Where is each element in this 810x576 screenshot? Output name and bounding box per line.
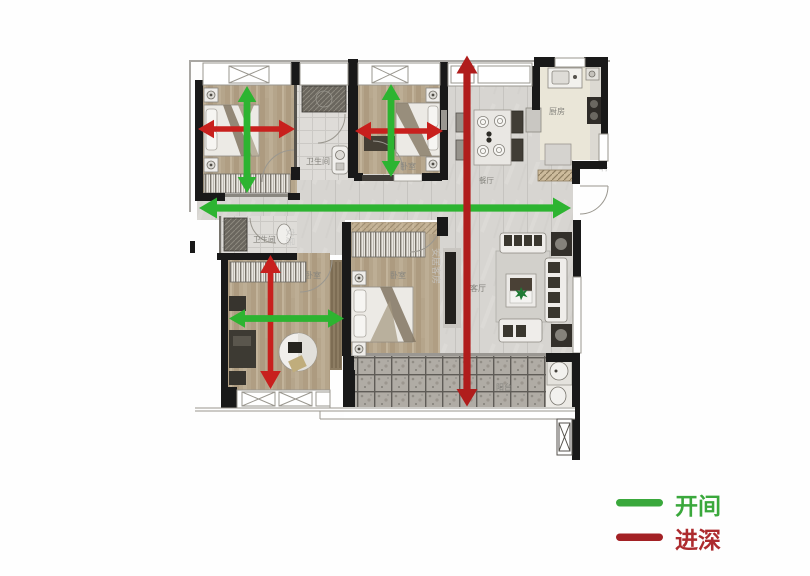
svg-text:开间: 开间 <box>675 493 721 519</box>
svg-text:卧室: 卧室 <box>305 270 321 280</box>
svg-text:卫生间: 卫生间 <box>306 156 330 166</box>
svg-text:安居: 安居 <box>285 228 296 246</box>
svg-text:客厅: 客厅 <box>470 283 486 293</box>
svg-text:进深: 进深 <box>675 527 721 553</box>
svg-text:安居客房: 安居客房 <box>431 248 442 284</box>
svg-text:卧室: 卧室 <box>390 270 406 280</box>
svg-text:厨房: 厨房 <box>549 106 565 116</box>
svg-text:餐厅: 餐厅 <box>479 176 494 185</box>
svg-text:阳台: 阳台 <box>496 382 512 392</box>
svg-text:卧室: 卧室 <box>400 161 416 171</box>
svg-text:卫生间: 卫生间 <box>253 234 276 244</box>
